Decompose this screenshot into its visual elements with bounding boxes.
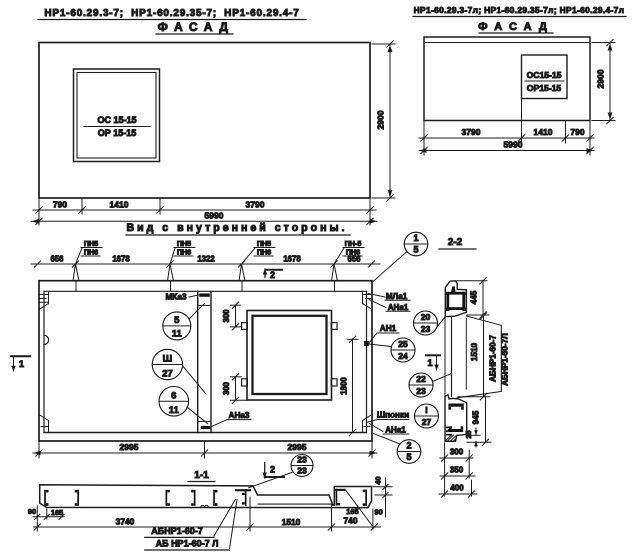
svg-text:23: 23 <box>297 455 307 465</box>
svg-text:АНа3: АНа3 <box>229 411 250 420</box>
svg-text:АНа1: АНа1 <box>385 426 406 435</box>
svg-text:МЛа1: МЛа1 <box>386 292 408 301</box>
svg-text:1: 1 <box>19 359 24 369</box>
svg-text:ПН6: ПН6 <box>346 248 360 257</box>
svg-text:27: 27 <box>162 369 173 380</box>
svg-text:ФАСАД: ФАСАД <box>158 20 235 34</box>
svg-text:300: 300 <box>222 381 231 395</box>
svg-text:1: 1 <box>427 358 432 368</box>
svg-text:656: 656 <box>50 255 64 264</box>
svg-text:445: 445 <box>470 290 479 304</box>
svg-text:2995: 2995 <box>288 442 307 452</box>
svg-text:5: 5 <box>413 245 418 255</box>
svg-text:165: 165 <box>346 507 358 516</box>
svg-text:165: 165 <box>51 508 63 517</box>
svg-text:2900: 2900 <box>596 69 606 88</box>
svg-text:5990: 5990 <box>205 211 224 221</box>
svg-text:НР1-60.29.3-7; НР1-60.29.35-7: НР1-60.29.3-7; НР1-60.29.35-7; НР1-60.29… <box>44 8 299 19</box>
svg-text:1410: 1410 <box>110 200 129 210</box>
svg-text:3740: 3740 <box>116 517 135 527</box>
svg-text:790: 790 <box>53 200 67 210</box>
svg-text:АН1: АН1 <box>380 324 397 333</box>
svg-text:5990: 5990 <box>504 140 523 150</box>
svg-text:1322: 1322 <box>197 255 215 264</box>
svg-text:20: 20 <box>421 312 431 322</box>
svg-text:23: 23 <box>297 465 307 475</box>
svg-text:ПН6: ПН6 <box>177 248 191 257</box>
svg-text:МКа3: МКа3 <box>165 293 186 302</box>
svg-text:1410: 1410 <box>534 127 553 137</box>
svg-text:1: 1 <box>413 233 418 243</box>
svg-text:ОР 15-15: ОР 15-15 <box>98 128 137 138</box>
svg-text:2900: 2900 <box>376 110 386 129</box>
svg-text:1510: 1510 <box>470 342 479 361</box>
svg-text:ПН6: ПН6 <box>84 248 98 257</box>
svg-text:1800: 1800 <box>340 377 349 395</box>
svg-text:5: 5 <box>174 315 180 326</box>
svg-text:Шпонки: Шпонки <box>377 411 409 420</box>
svg-text:1-1: 1-1 <box>194 470 209 481</box>
svg-text:АНа1: АНа1 <box>388 303 409 312</box>
svg-text:I: I <box>425 405 427 415</box>
svg-text:11: 11 <box>169 405 180 416</box>
svg-text:2: 2 <box>270 270 275 280</box>
svg-text:АБ НР1-60-7 Л: АБ НР1-60-7 Л <box>156 539 219 549</box>
svg-text:ОР15-15: ОР15-15 <box>527 83 562 93</box>
svg-text:2-2: 2-2 <box>448 237 463 248</box>
svg-text:790: 790 <box>570 127 584 137</box>
svg-text:ФАСАД: ФАСАД <box>478 21 554 33</box>
svg-text:АБНР1-60-7: АБНР1-60-7 <box>489 335 498 382</box>
svg-text:АБНР1-60-7Л: АБНР1-60-7Л <box>501 333 510 386</box>
svg-text:5: 5 <box>406 452 411 462</box>
svg-text:1678: 1678 <box>112 255 130 264</box>
svg-text:24: 24 <box>398 351 408 361</box>
svg-text:40: 40 <box>374 476 383 484</box>
svg-text:90: 90 <box>374 508 382 517</box>
svg-text:350: 350 <box>450 466 464 475</box>
svg-text:400: 400 <box>450 484 464 493</box>
svg-text:ПН6: ПН6 <box>257 248 271 257</box>
svg-text:1678: 1678 <box>283 255 301 264</box>
svg-text:11: 11 <box>172 329 183 340</box>
svg-text:3790: 3790 <box>462 127 481 137</box>
svg-text:740: 740 <box>344 516 358 526</box>
svg-text:Вид с внутренней стороны.: Вид с внутренней стороны. <box>126 222 347 234</box>
svg-text:1510: 1510 <box>282 517 301 527</box>
svg-text:3790: 3790 <box>246 200 265 210</box>
svg-text:300: 300 <box>450 448 464 457</box>
svg-text:23: 23 <box>421 324 431 334</box>
svg-text:АБНР1-60-7: АБНР1-60-7 <box>151 526 203 536</box>
svg-text:25: 25 <box>464 431 473 439</box>
svg-text:945: 945 <box>472 410 481 424</box>
svg-text:6: 6 <box>171 391 176 402</box>
svg-text:Ш: Ш <box>163 354 173 365</box>
svg-text:НР1-60.29.3-7л; НР1-60.29.35-7: НР1-60.29.3-7л; НР1-60.29.35-7л; НР1-60.… <box>414 5 625 15</box>
svg-text:2995: 2995 <box>120 442 139 452</box>
svg-text:25: 25 <box>398 339 408 349</box>
svg-text:23: 23 <box>416 386 426 396</box>
svg-text:2: 2 <box>270 465 275 475</box>
svg-text:300: 300 <box>222 309 231 323</box>
svg-text:2: 2 <box>406 441 411 451</box>
svg-text:ОС 15-15: ОС 15-15 <box>97 115 136 125</box>
svg-text:90: 90 <box>28 507 36 516</box>
svg-text:22: 22 <box>416 374 426 384</box>
svg-text:ОС15-15: ОС15-15 <box>527 70 562 80</box>
svg-text:27: 27 <box>422 417 432 427</box>
